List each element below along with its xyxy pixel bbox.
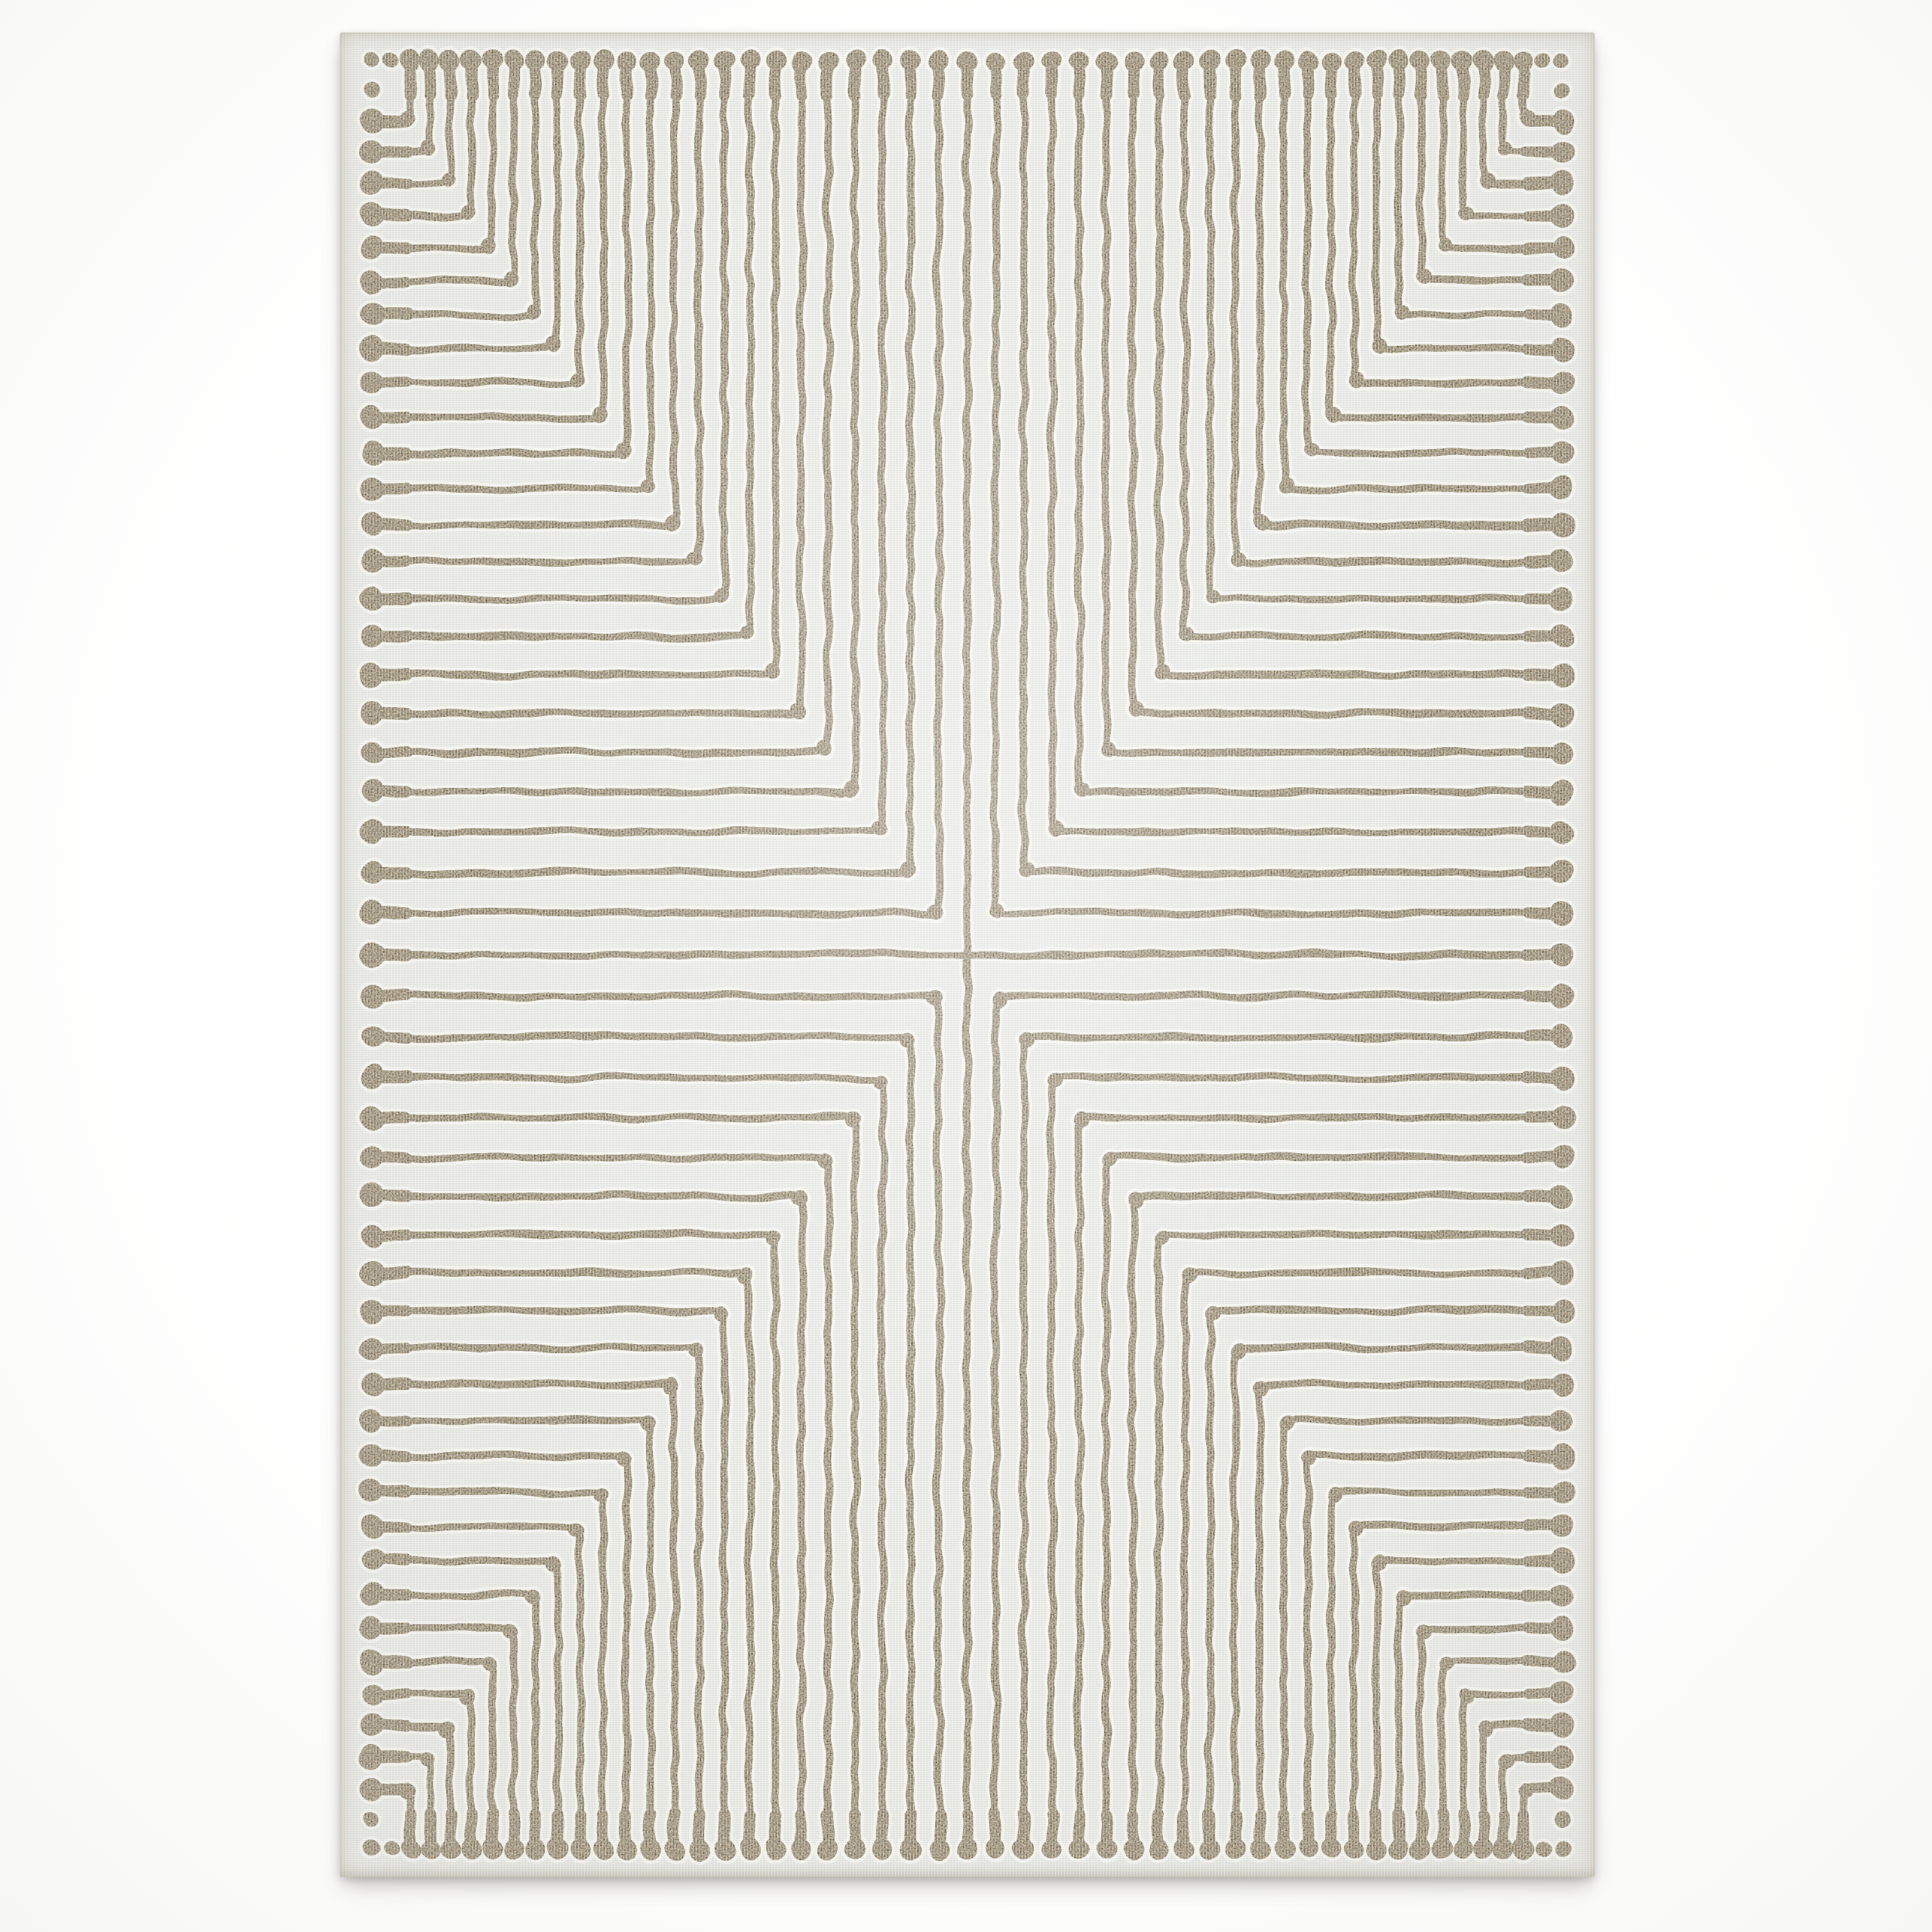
rug-pattern-svg bbox=[340, 32, 1595, 1877]
product-photo bbox=[0, 0, 1932, 1932]
rug bbox=[340, 32, 1595, 1877]
